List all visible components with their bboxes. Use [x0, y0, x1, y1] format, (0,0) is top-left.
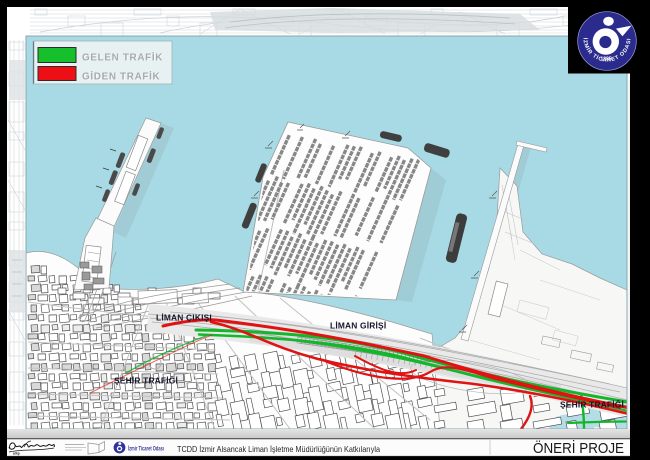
svg-text:ŞEHİR TRAFİĞİ: ŞEHİR TRAFİĞİ [560, 399, 624, 410]
svg-text:arkp: arkp [13, 452, 20, 456]
svg-text:LİMAN ÇIKIŞI: LİMAN ÇIKIŞI [156, 313, 212, 323]
svg-text:GELEN TRAFİK: GELEN TRAFİK [82, 51, 163, 64]
svg-text:ŞEHİR TRAFİĞİ: ŞEHİR TRAFİĞİ [114, 375, 178, 386]
svg-text:TCDD İzmir Alsancak Liman İşle: TCDD İzmir Alsancak Liman İşletme Müdürl… [177, 445, 380, 454]
svg-text:1885: 1885 [600, 57, 611, 63]
svg-text:İzmir Ticaret Odası: İzmir Ticaret Odası [128, 443, 164, 452]
svg-text:ÖNERİ PROJE: ÖNERİ PROJE [533, 439, 624, 457]
svg-text:LİMAN GİRİŞİ: LİMAN GİRİŞİ [330, 321, 386, 331]
svg-text:GİDEN TRAFİK: GİDEN TRAFİK [82, 70, 160, 83]
